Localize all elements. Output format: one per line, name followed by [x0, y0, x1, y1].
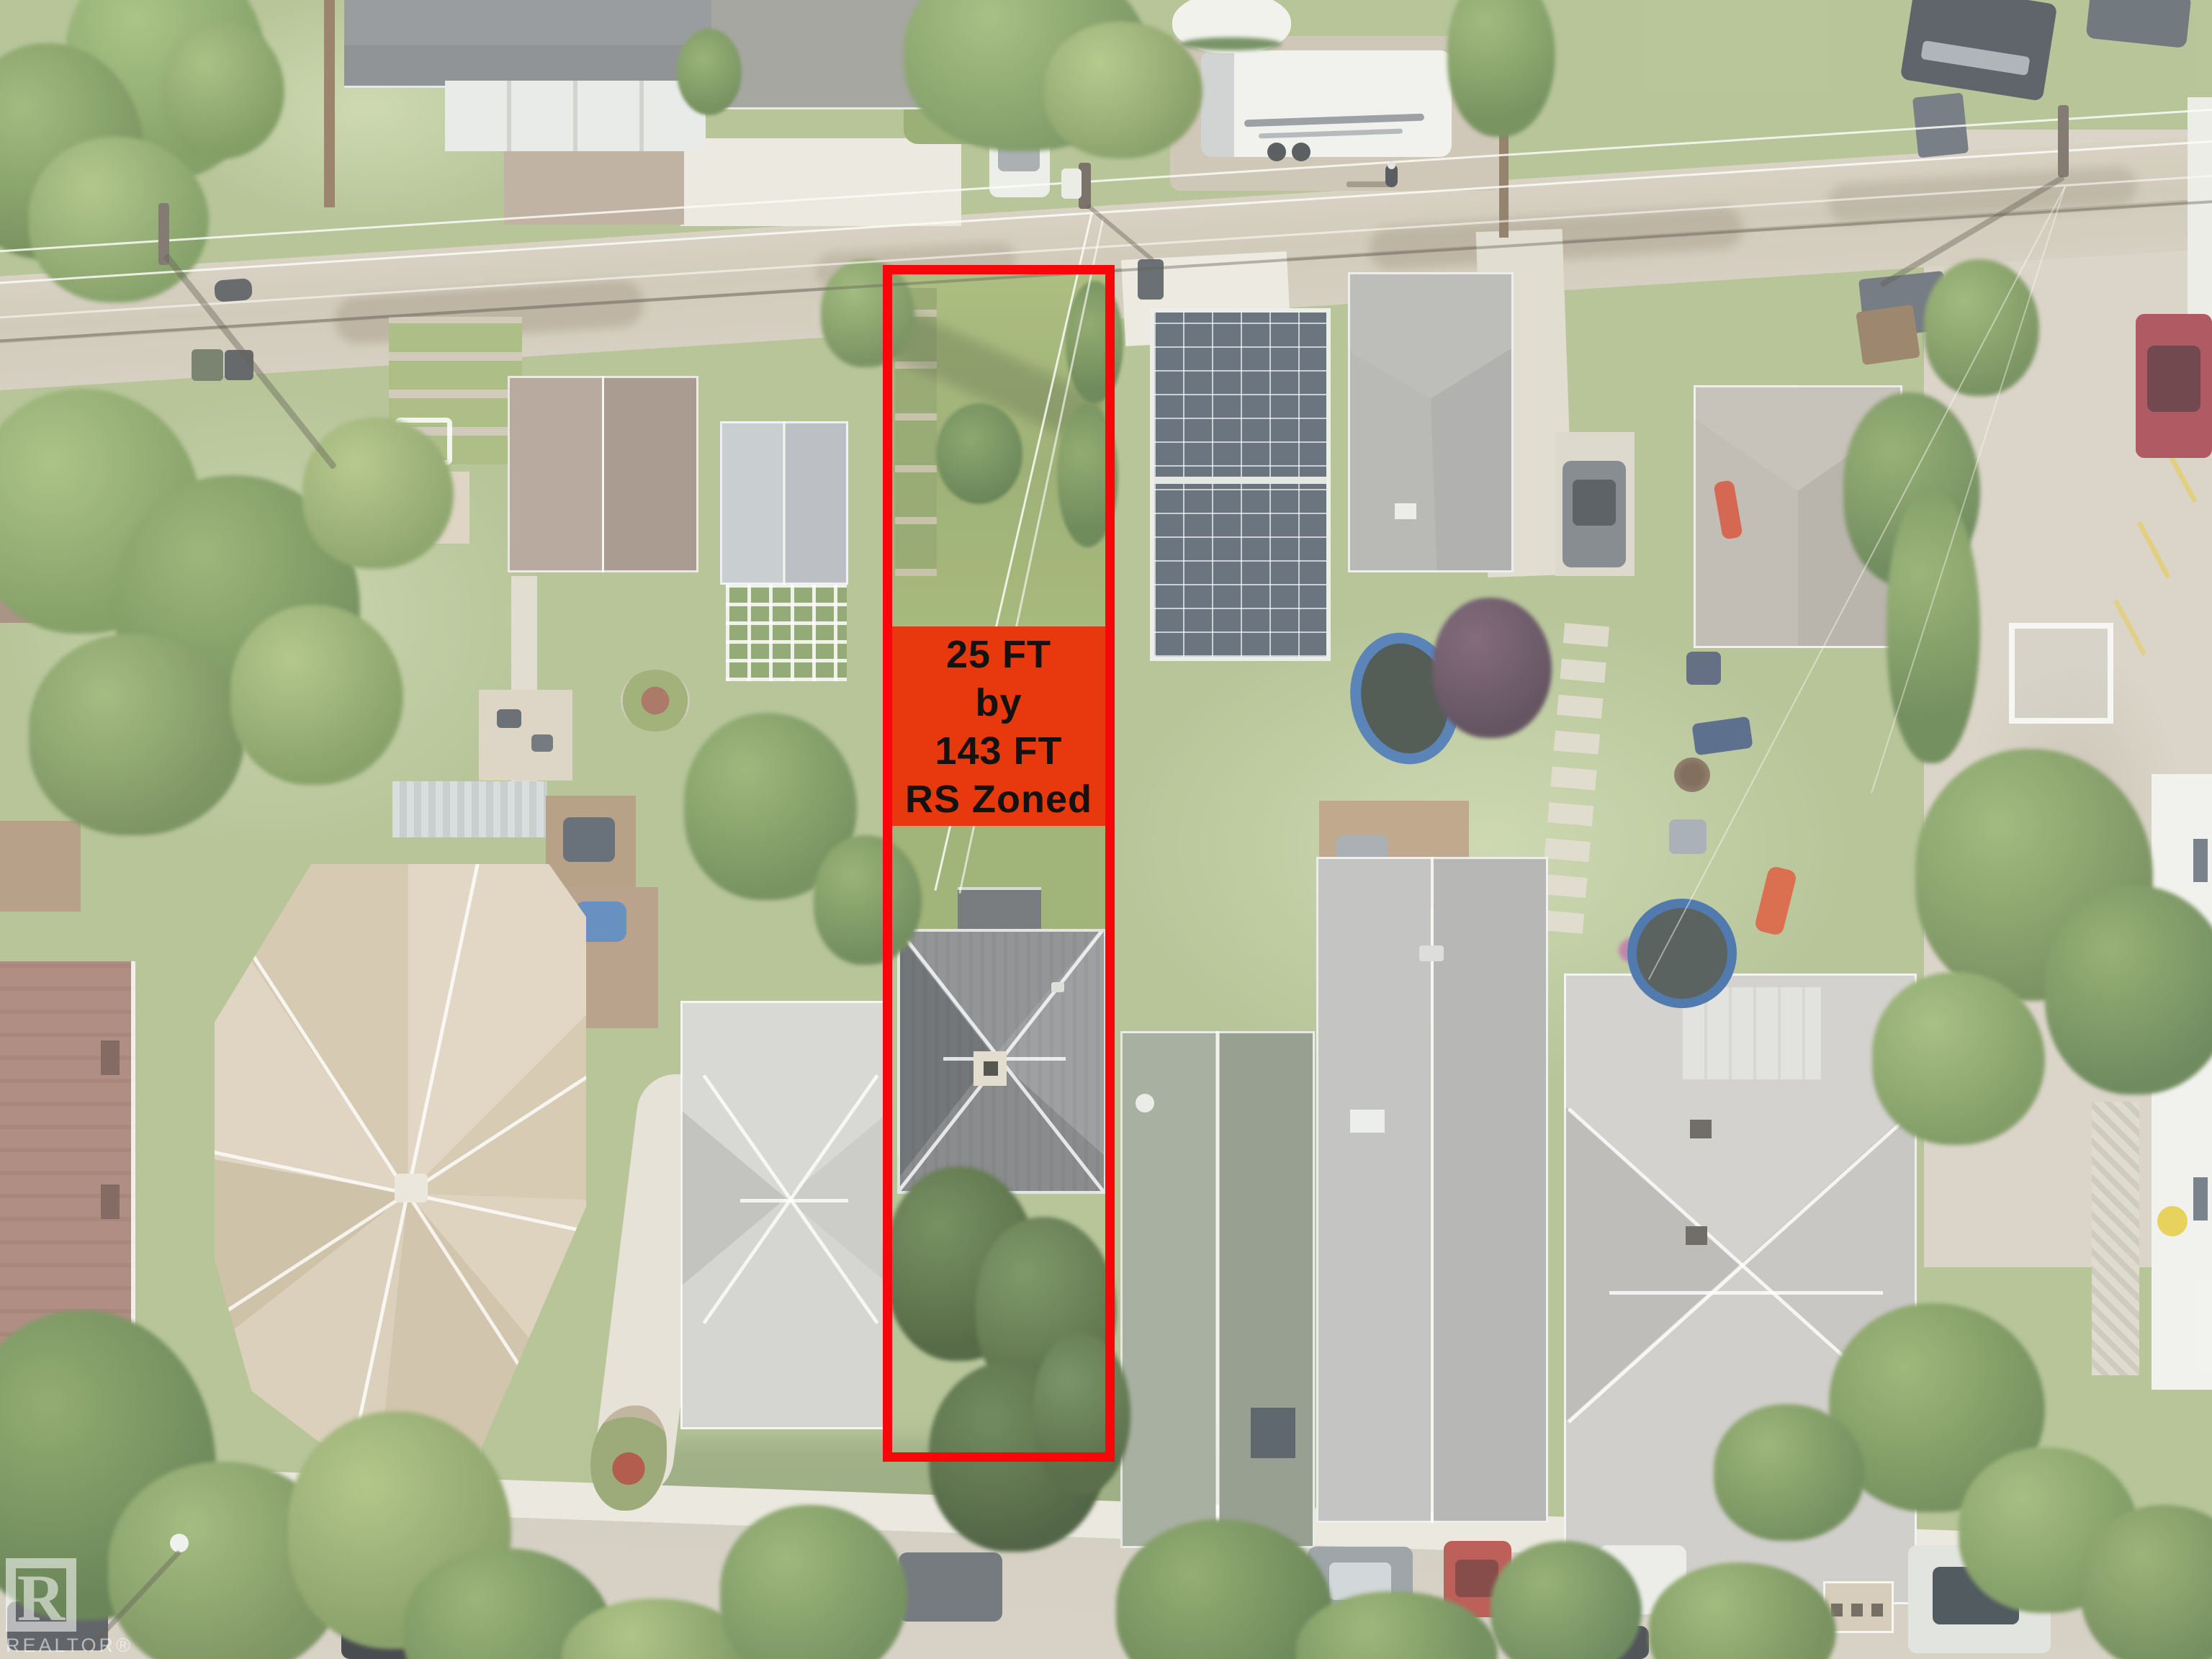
- realtor-logo-r: R: [16, 1568, 66, 1627]
- label-line-width: 25 FT: [892, 631, 1105, 679]
- label-line-zoning: RS Zoned: [892, 775, 1105, 824]
- label-line-depth: 143 FT: [892, 727, 1105, 775]
- lot-dimensions-label: 25 FT by 143 FT RS Zoned: [892, 626, 1105, 826]
- realtor-wordmark: REALTOR®: [6, 1635, 133, 1657]
- realtor-watermark: R REALTOR®: [6, 1554, 179, 1659]
- label-line-by: by: [892, 679, 1105, 727]
- aerial-photo: 25 FT by 143 FT RS Zoned R REALTOR®: [0, 0, 2212, 1659]
- realtor-logo-r-box: R: [6, 1558, 76, 1632]
- subject-lot-outline: 25 FT by 143 FT RS Zoned: [883, 265, 1115, 1462]
